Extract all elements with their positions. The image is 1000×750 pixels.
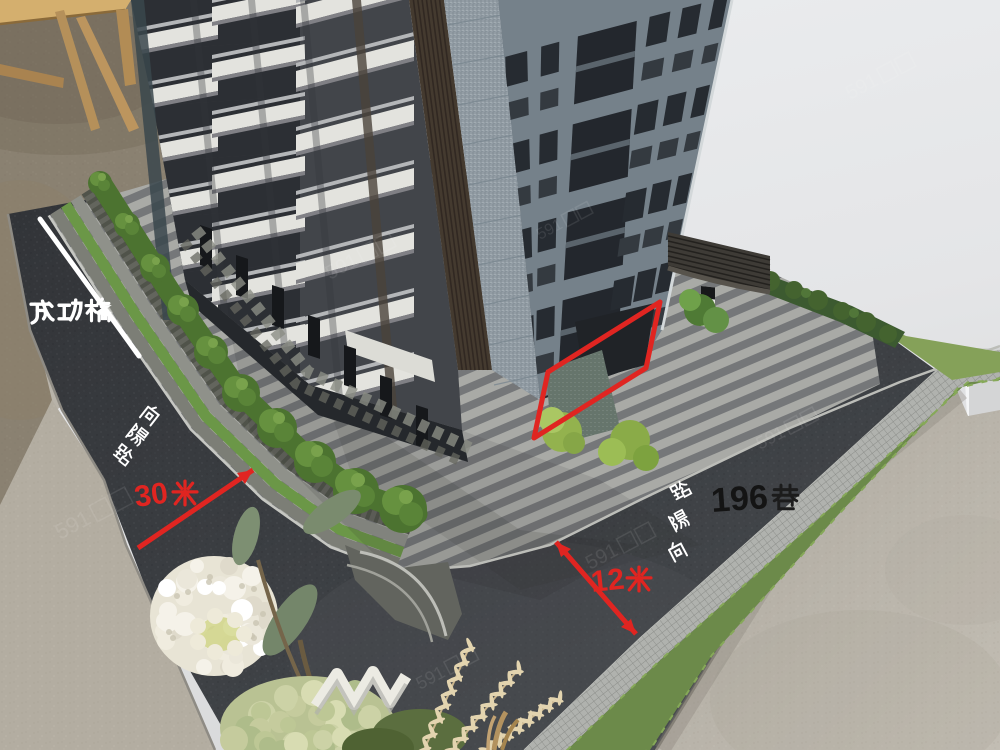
svg-text:196: 196 [710,478,769,520]
svg-text:30: 30 [132,477,170,514]
